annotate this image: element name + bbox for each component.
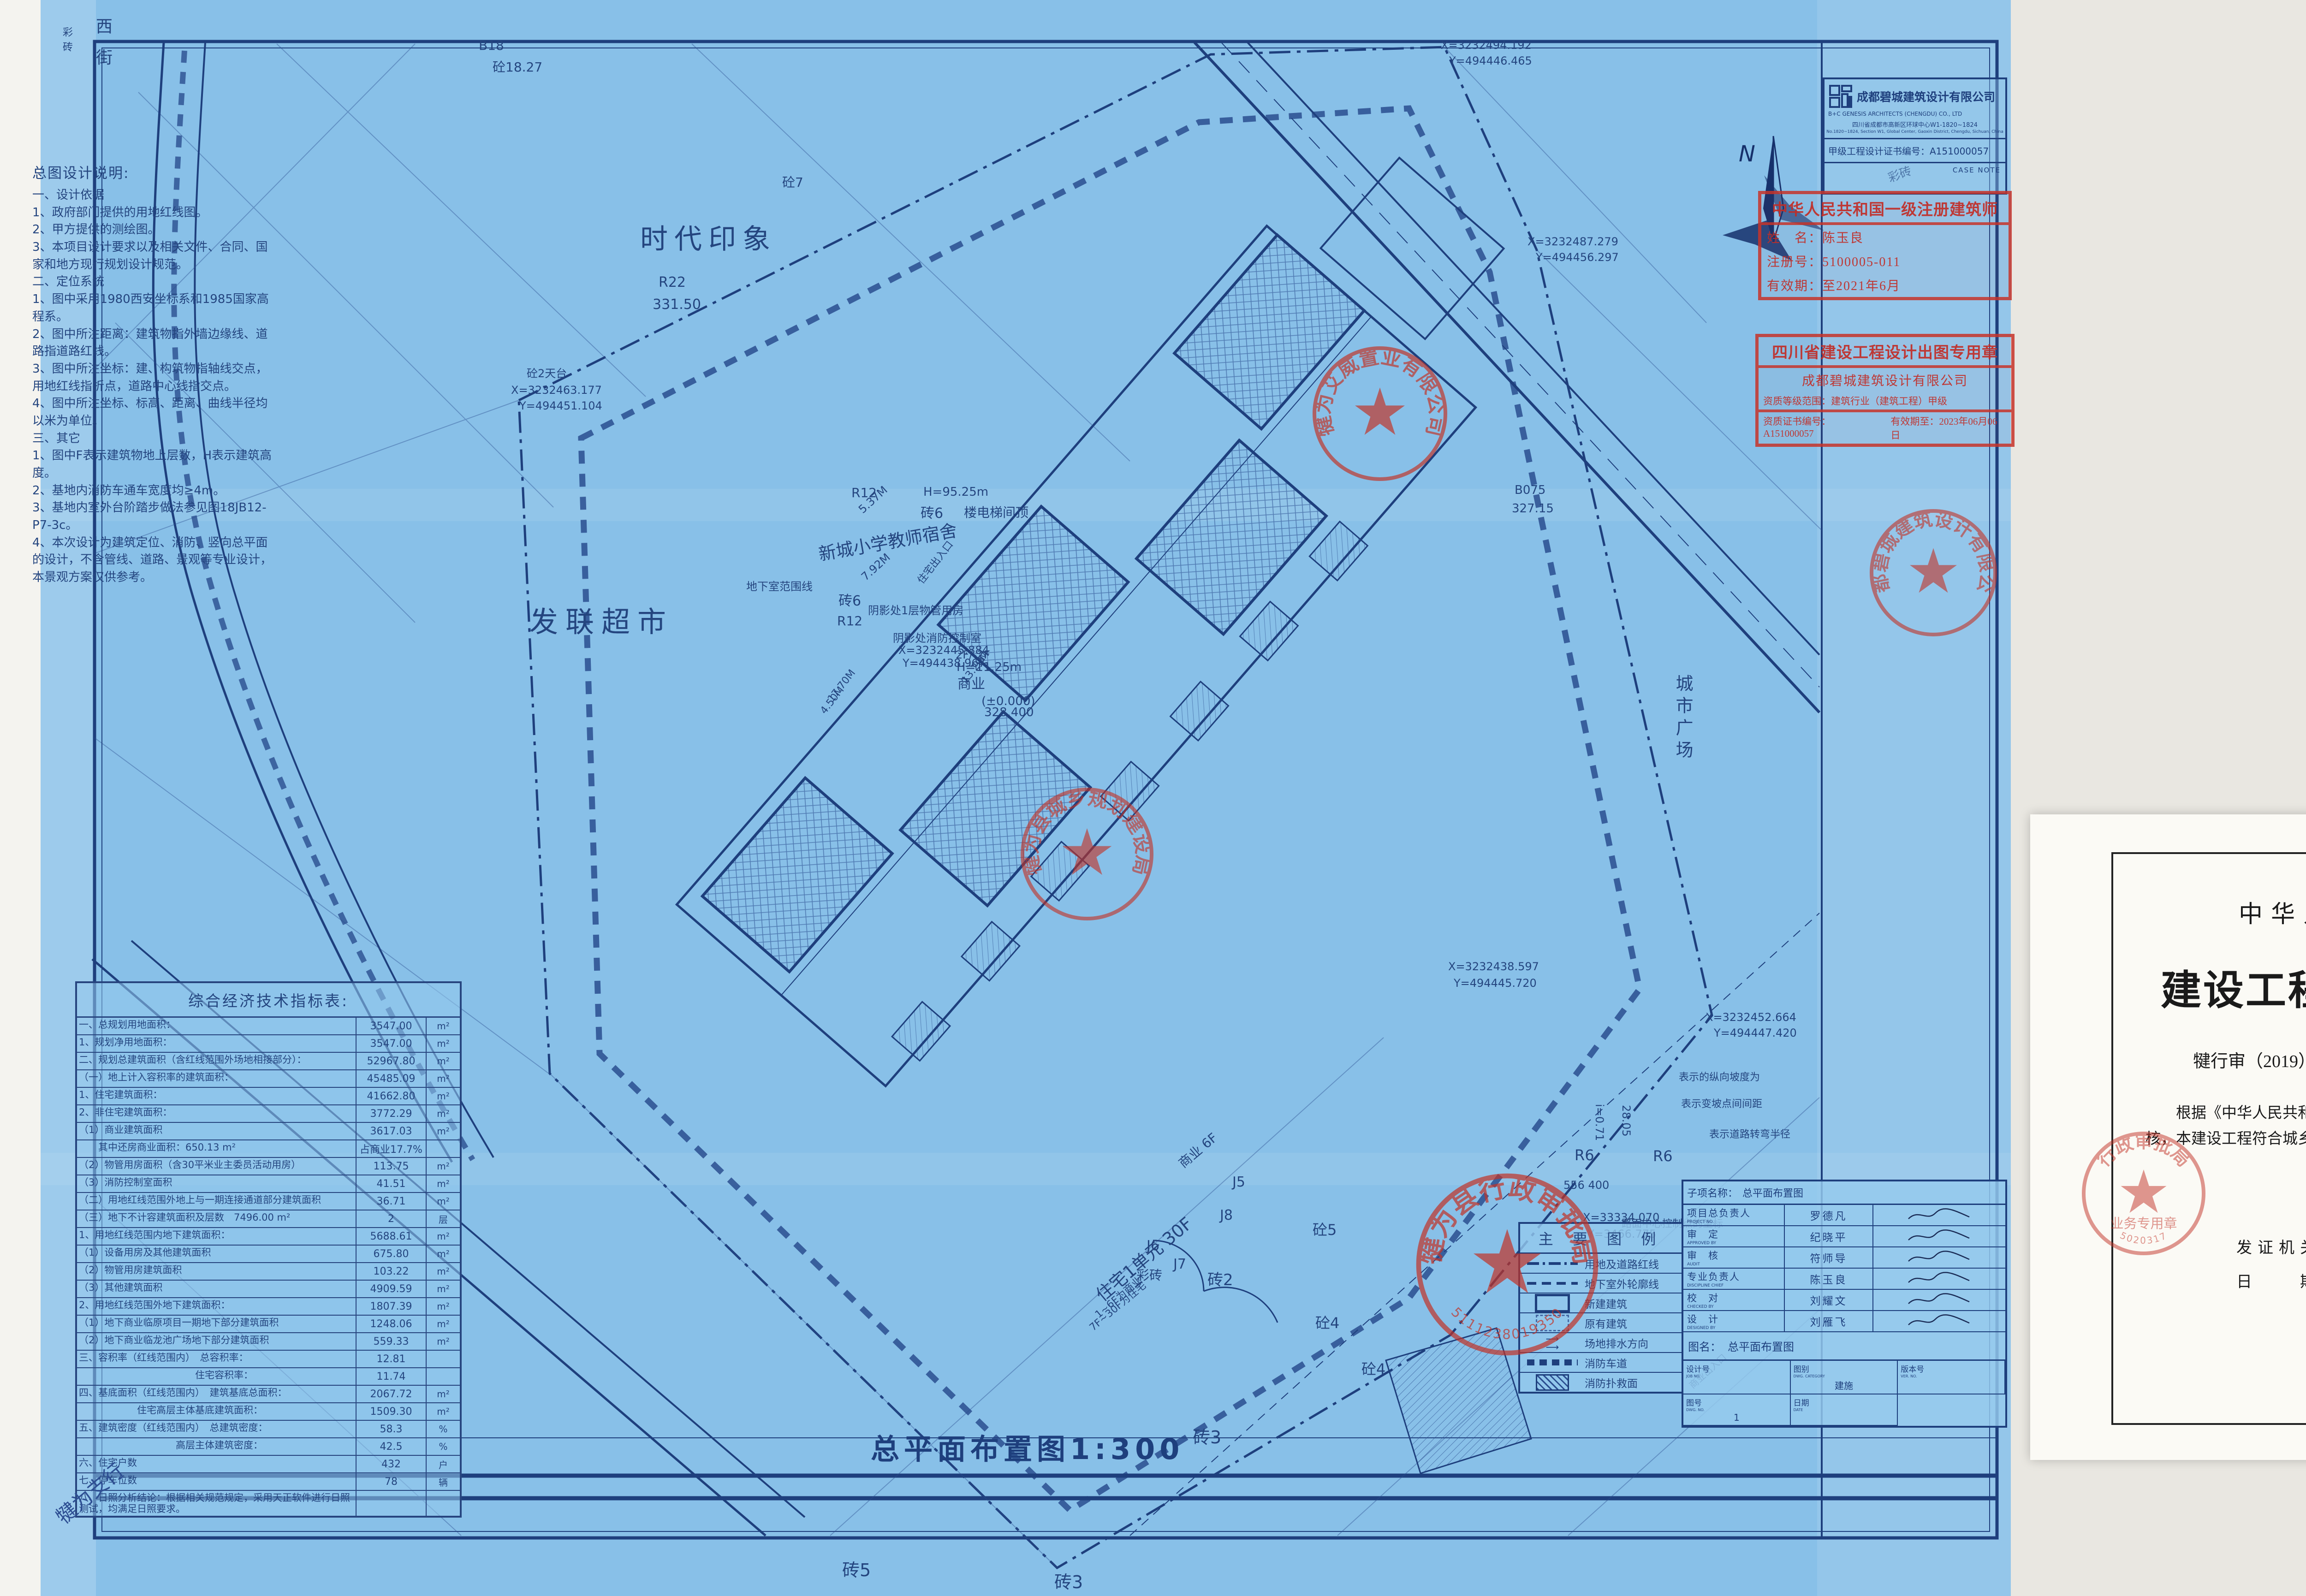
permit-body-text: 根据《中华人民共和国城乡规划法》第四十条规定，经审核，本建设工程符合城乡规划要求…	[2146, 1100, 2306, 1152]
map-label: Y=494451.104	[519, 399, 602, 412]
role-name-en: CHECKED BY	[1687, 1305, 1784, 1309]
role-name: 设 计	[1687, 1312, 1784, 1326]
signature	[1873, 1205, 2005, 1225]
econ-row-value: 41.51	[356, 1175, 426, 1192]
personnel-row: 审 核 AUDIT 符师导	[1683, 1247, 2005, 1269]
plan-title: 总平面布置图1:300	[871, 1426, 1184, 1467]
permit-date-label: 日 期	[2236, 1269, 2306, 1292]
map-label: B075	[1515, 483, 1545, 497]
map-label: 砖6	[838, 589, 861, 610]
econ-row-unit	[426, 1491, 460, 1516]
map-label: i=0.71	[1593, 1104, 1606, 1141]
personnel-row: 专业负责人 DISCIPLINE CHIEF 陈玉良	[1683, 1269, 2005, 1290]
map-label: 砖3	[1193, 1423, 1221, 1448]
map-label: R22	[659, 274, 686, 291]
econ-row-label: 其中还房商业面积：650.13 m²	[77, 1140, 356, 1157]
subitem-value: 总平面布置图	[1742, 1185, 1803, 1200]
econ-row-label: （1）设备用房及其他建筑面积	[77, 1246, 356, 1262]
map-label: 阴影处消防控制室	[893, 629, 981, 645]
econ-table-row: （2）物管用房建筑面积 103.22 m²	[77, 1263, 460, 1281]
figure-name-value: 总平面布置图	[1728, 1338, 1794, 1354]
econ-table-row: （1）设备用房及其他建筑面积 675.80 m²	[77, 1246, 460, 1263]
econ-row-value: 5688.61	[356, 1228, 426, 1245]
sichuan-stamp-valid: 有效期至：2023年06月06日	[1886, 412, 2011, 444]
econ-table-row: 八、日照分析结论：根据相关规范规定，采用天正软件进行日照测试，均满足日照要求。	[77, 1491, 460, 1516]
role-name: 审 核	[1687, 1248, 1784, 1262]
map-label: R6	[1575, 1146, 1594, 1164]
map-label: Y=494456.297	[1536, 251, 1619, 264]
econ-row-unit: m²	[426, 1386, 460, 1402]
map-label: 彩砖	[59, 27, 74, 56]
econ-row-value: 1807.39	[356, 1298, 426, 1315]
role-name: 项目总负责人	[1687, 1206, 1784, 1220]
econ-row-value: 2	[356, 1210, 426, 1227]
role-name: 专业负责人	[1687, 1270, 1784, 1283]
signature	[1873, 1290, 2005, 1310]
map-label: 砼7	[782, 172, 803, 191]
map-label: 楼电梯间顶	[964, 503, 1028, 521]
econ-row-unit: m²	[426, 1333, 460, 1350]
econ-table-row: （2）地下商业临龙池广场地下部分建筑面积 559.33 m²	[77, 1333, 460, 1351]
econ-row-label: 2、非住宅建筑面积：	[77, 1105, 356, 1122]
note-line: 三、其它	[32, 430, 272, 448]
permit-country: 中华人民共和国	[2113, 895, 2306, 929]
sichuan-stamp-title: 四川省建设工程设计出图专用章	[1759, 337, 2011, 368]
role-name: 校 对	[1687, 1291, 1784, 1305]
econ-row-value: 3547.00	[356, 1035, 426, 1052]
permit-title: 建设工程规划许可证	[2113, 958, 2306, 1016]
personnel-row: 审 定 APPROVED BY 纪晓平	[1683, 1226, 2005, 1247]
legend-symbol	[1520, 1359, 1585, 1365]
drawing-info-field: 设计号 JOB NO.	[1683, 1361, 1791, 1394]
company-address-cn: 四川省成都市高新区环球中心W1-1820~1824	[1825, 117, 2005, 130]
sichuan-stamp-scope: 资质等级范围：建筑行业（建筑工程）甲级	[1759, 392, 2011, 409]
note-line: 2、甲方提供的测绘图。	[32, 221, 272, 239]
note-line: 二、定位系统	[32, 273, 272, 291]
field-label: 图号	[1686, 1396, 1787, 1408]
map-label: 时代印象	[640, 217, 777, 257]
signature	[1873, 1226, 2005, 1246]
person-name: 符师导	[1785, 1247, 1873, 1268]
legend-row: 用地及道路红线	[1520, 1254, 1682, 1274]
econ-row-value: 41662.80	[356, 1088, 426, 1104]
note-line: 3、基地内室外台阶踏步做法参见图18JB12-P7-3c。	[32, 499, 272, 534]
econ-row-value: 2067.72	[356, 1386, 426, 1402]
map-label: J7	[1173, 1256, 1186, 1272]
notes-title: 总图设计说明:	[32, 161, 272, 182]
legend-label: 场地排水方向	[1585, 1335, 1648, 1351]
map-label: Y=494446.465	[1449, 54, 1532, 67]
signature	[1873, 1247, 2005, 1268]
econ-row-label: 1、用地红线范围内地下建筑面积：	[77, 1228, 356, 1245]
econ-table-row: 四、基底面积（红线范围内） 建筑基底总面积： 2067.72 m²	[77, 1386, 460, 1403]
map-label: R12	[837, 613, 862, 629]
note-line: 4、本次设计为建筑定位、消防、竖向总平面的设计，不含管线、道路、景观等专业设计，…	[32, 534, 272, 587]
econ-table-row: （1）地下商业临原项目一期地下部分建筑面积 1248.06 m²	[77, 1316, 460, 1333]
econ-row-unit: m²	[426, 1175, 460, 1192]
econ-table-row: 三、容积率（红线范围内） 总容积率： 12.81	[77, 1351, 460, 1368]
econ-row-label: （一）地上计入容积率的建筑面积：	[77, 1070, 356, 1087]
stamp-name-value: 陈玉良	[1822, 231, 1864, 245]
econ-row-unit: %	[426, 1421, 460, 1437]
legend-row: 原有建筑	[1520, 1313, 1682, 1333]
map-label: 331.50	[653, 297, 701, 313]
econ-row-label: 1、住宅建筑面积：	[77, 1088, 356, 1104]
stamp-reg-value: 5100005-011	[1822, 255, 1901, 269]
map-label: R6	[1653, 1147, 1673, 1165]
econ-row-value: 559.33	[356, 1333, 426, 1350]
econ-row-unit: 辆	[426, 1473, 460, 1490]
permit-issuer-label: 发证机关	[2236, 1235, 2306, 1258]
legend-title: 主 要 图 例	[1520, 1224, 1682, 1254]
econ-row-label: （3）消防控制室面积	[77, 1175, 356, 1192]
company-name-cn: 成都碧城建筑设计有限公司	[1857, 88, 1995, 105]
stamp-reg-label: 注册号：	[1767, 255, 1822, 269]
legend-label: 新建建筑	[1585, 1295, 1627, 1311]
econ-row-unit: m²	[426, 1228, 460, 1245]
econ-row-label: （2）地下商业临龙池广场地下部分建筑面积	[77, 1333, 356, 1350]
note-line: 2、基地内消防车通车宽度均≥4m。	[32, 482, 272, 500]
map-label: 阴影处1层物管用房	[868, 601, 963, 617]
econ-row-value: 78	[356, 1473, 426, 1490]
signature	[1873, 1311, 2005, 1331]
planning-permit-document: 中华人民共和国 建设工程规划许可证 犍行审（2019） 建字第 贰拾伍（25） …	[2030, 814, 2306, 1460]
econ-table-title: 综合经济技术指标表:	[77, 983, 460, 1018]
econ-table-row: 1、住宅建筑面积： 41662.80 m²	[77, 1088, 460, 1105]
econ-table-row: 六、住宅户数 432 户	[77, 1456, 460, 1473]
econ-table-row: 一、总规划用地面积： 3547.00 m²	[77, 1018, 460, 1035]
map-label: B18	[479, 38, 504, 53]
map-label: 表示道路转弯半径	[1709, 1126, 1790, 1141]
econ-row-value: 58.3	[356, 1421, 426, 1437]
role-name-en: APPROVED BY	[1687, 1241, 1784, 1246]
role-name-en: PROJECT NO.	[1687, 1220, 1784, 1224]
econ-row-unit: 户	[426, 1456, 460, 1472]
map-label: 砼2天台	[527, 364, 567, 380]
scanned-page: N 总图设计说明: 一、设计依据1、政府部门提供的用地红线图。2、甲方提供的测绘…	[0, 0, 2306, 1596]
econ-row-value: 4909.59	[356, 1281, 426, 1297]
econ-row-label: 五、建筑密度（红线范围内） 总建筑密度：	[77, 1421, 356, 1437]
company-name-en: B+C GENESIS ARCHITECTS (CHENGDU) CO., LT…	[1825, 111, 2005, 117]
econ-table-row: 其中还房商业面积：650.13 m² 占商业17.7%	[77, 1140, 460, 1158]
title-block-personnel: 子项名称： 总平面布置图 项目总负责人 PROJECT NO. 罗德凡 审 定 …	[1682, 1180, 2007, 1428]
econ-row-value: 占商业17.7%	[356, 1140, 426, 1157]
econ-row-value: 42.5	[356, 1438, 426, 1455]
econ-row-unit: m²	[426, 1158, 460, 1175]
architect-stamp: 中华人民共和国一级注册建筑师 姓 名：陈玉良 注册号：5100005-011 有…	[1758, 191, 2012, 300]
design-notes: 总图设计说明: 一、设计依据1、政府部门提供的用地红线图。2、甲方提供的测绘图。…	[32, 161, 272, 587]
map-label: 城市广场	[1670, 674, 1696, 763]
econ-row-label: 1、规划净用地面积：	[77, 1035, 356, 1052]
legend-row: 地下室外轮廓线	[1520, 1274, 1682, 1293]
signature	[1873, 1269, 2005, 1289]
econ-row-value: 36.71	[356, 1193, 426, 1210]
note-line: 1、图中F表示建筑物地上层数，H表示建筑高度。	[32, 447, 272, 482]
map-label: X=3232463.177	[511, 384, 602, 397]
sichuan-stamp-company: 成都碧城建筑设计有限公司	[1759, 368, 2011, 392]
econ-row-label: 2、用地红线范围外地下建筑面积：	[77, 1298, 356, 1315]
econ-row-label: （2）物管用房面积（含30平米业主委员活动用房）	[77, 1158, 356, 1175]
map-label: 表示的纵向坡度为	[1679, 1069, 1760, 1084]
drawing-info-field: 图号 DWG. NO. 1	[1683, 1394, 1791, 1426]
econ-row-value: 12.81	[356, 1351, 426, 1367]
role-name-en: DESIGNED BY	[1687, 1326, 1784, 1330]
note-line: 4、图中所注坐标、标高、距离、曲线半径均以米为单位。	[32, 395, 272, 430]
econ-table-row: 二、规划总建筑面积（含红线范围外场地相接部分）： 52967.80 m²	[77, 1053, 460, 1070]
note-line: 2、图中所注距离：建筑物指外墙边缘线、道路指道路红线。	[32, 326, 272, 361]
stamp-name-label: 姓 名：	[1767, 231, 1822, 245]
econ-row-label: 二、规划总建筑面积（含红线范围外场地相接部分）：	[77, 1053, 356, 1069]
econ-row-value: 432	[356, 1456, 426, 1472]
econ-row-value: 1248.06	[356, 1316, 426, 1332]
legend-symbol: ⟶⟶	[1520, 1335, 1585, 1351]
map-label: Y=494447.420	[1714, 1026, 1797, 1039]
legend-symbol	[1520, 1294, 1585, 1312]
econ-row-value: 103.22	[356, 1263, 426, 1280]
econ-row-label: （1）地下商业临原项目一期地下部分建筑面积	[77, 1316, 356, 1332]
econ-table-row: 七、停车位数 78 辆	[77, 1473, 460, 1491]
company-cert-no: 甲级工程设计证书编号：A151000057	[1825, 139, 2005, 163]
title-block-company: 成都碧城建筑设计有限公司 B+C GENESIS ARCHITECTS (CHE…	[1823, 77, 2007, 195]
econ-row-unit	[426, 1140, 460, 1157]
field-label-en: DWG. CATEGORY	[1794, 1374, 1895, 1378]
case-note-label: CASE NOTE	[1825, 163, 2005, 193]
legend-symbol	[1520, 1282, 1585, 1285]
econ-row-unit: m²	[426, 1035, 460, 1052]
econ-row-label: 住宅容积率：	[77, 1368, 356, 1385]
econ-table-row: （二）用地红线范围外地上与一期连接通道部分建筑面积 36.71 m²	[77, 1193, 460, 1210]
econ-table-row: 2、用地红线范围外地下建筑面积： 1807.39 m²	[77, 1298, 460, 1316]
note-line: 一、设计依据	[32, 187, 272, 204]
econ-row-unit: m²	[426, 1298, 460, 1315]
map-label: 砼4	[1361, 1358, 1385, 1379]
permit-border: 中华人民共和国 建设工程规划许可证 犍行审（2019） 建字第 贰拾伍（25） …	[2111, 852, 2306, 1425]
sichuan-stamp-cert: 资质证书编号：A151000057	[1759, 412, 1886, 444]
permit-serial-prefix: 犍行审（2019）	[2193, 1047, 2306, 1072]
econ-table-row: 住宅高层主体基底建筑面积： 1509.30 m²	[77, 1403, 460, 1421]
person-name: 陈玉良	[1785, 1269, 1873, 1289]
econ-table-row: （一）地上计入容积率的建筑面积： 45485.09 m²	[77, 1070, 460, 1088]
company-address-en: No.1820~1824, Section W1, Global Center,…	[1825, 130, 2005, 139]
econ-row-label: （2）物管用房建筑面积	[77, 1263, 356, 1280]
figure-name-label: 图名：	[1688, 1338, 1721, 1354]
map-label: X=3232452.664	[1706, 1011, 1796, 1024]
company-logo-icon	[1828, 84, 1853, 109]
note-line: 1、图中采用1980西安坐标系和1985国家高程系。	[32, 291, 272, 326]
econ-row-unit	[426, 1351, 460, 1367]
map-label: X=3232487.279	[1527, 235, 1618, 248]
note-line: 3、图中所注坐标：建、构筑物指轴线交点，用地红线指折点，道路中心线指交点。	[32, 361, 272, 395]
architect-stamp-title: 中华人民共和国一级注册建筑师	[1761, 194, 2009, 225]
person-name: 刘耀文	[1785, 1290, 1873, 1310]
map-label: 砼4	[1315, 1311, 1339, 1333]
note-line: 1、政府部门提供的用地红线图。	[32, 204, 272, 222]
map-label: 发联超市	[529, 599, 673, 640]
econ-row-unit: m²	[426, 1105, 460, 1122]
econ-table-row: （3）其他建筑面积 4909.59 m²	[77, 1281, 460, 1298]
map-label: H=95.25m	[923, 485, 988, 499]
map-label: 砼5	[1313, 1218, 1337, 1240]
econ-row-value: 3772.29	[356, 1105, 426, 1122]
legend-symbol	[1520, 1315, 1585, 1331]
map-label: 砖3	[1054, 1568, 1083, 1593]
econ-row-label: 一、总规划用地面积：	[77, 1018, 356, 1034]
personnel-row: 校 对 CHECKED BY 刘耀文	[1683, 1290, 2005, 1311]
econ-row-label: （二）用地红线范围外地上与一期连接通道部分建筑面积	[77, 1193, 356, 1210]
econ-table-row: （3）消防控制室面积 41.51 m²	[77, 1175, 460, 1193]
econ-row-unit: m²	[426, 1246, 460, 1262]
econ-row-unit: m²	[426, 1281, 460, 1297]
field-value: 建施	[1794, 1378, 1895, 1392]
econ-row-unit: m²	[426, 1263, 460, 1280]
legend-row: 消防扑救面	[1520, 1373, 1682, 1392]
map-label: 地下室范围线	[746, 577, 813, 593]
econ-table-row: （1）商业建筑面积 3617.03 m²	[77, 1123, 460, 1140]
econ-row-unit: %	[426, 1438, 460, 1455]
econ-row-unit: m²	[426, 1018, 460, 1034]
econ-row-unit: m²	[426, 1088, 460, 1104]
econ-row-label: 三、容积率（红线范围内） 总容积率：	[77, 1351, 356, 1367]
person-name: 纪晓平	[1785, 1226, 1873, 1246]
map-label: X=3232494.192	[1441, 39, 1532, 52]
econ-row-unit: m²	[426, 1070, 460, 1087]
legend-symbol	[1520, 1262, 1585, 1265]
econ-row-unit: m²	[426, 1053, 460, 1069]
field-label: 设计号	[1686, 1363, 1787, 1374]
role-name: 审 定	[1687, 1227, 1784, 1241]
note-line: 3、本项目设计要求以及相关文件、合同、国家和地方现行规划设计规范。	[32, 239, 272, 273]
personnel-row: 项目总负责人 PROJECT NO. 罗德凡	[1683, 1205, 2005, 1226]
legend-row: 新建建筑	[1520, 1293, 1682, 1313]
econ-table-row: 2、非住宅建筑面积： 3772.29 m²	[77, 1105, 460, 1123]
person-name: 罗德凡	[1785, 1205, 1873, 1225]
econ-row-value: 11.74	[356, 1368, 426, 1385]
econ-table-row: 住宅容积率： 11.74	[77, 1368, 460, 1386]
legend-label: 消防扑救面	[1585, 1375, 1638, 1390]
map-label: 砖2	[1207, 1267, 1233, 1290]
field-label: 日期	[1794, 1396, 1895, 1408]
role-name-en: DISCIPLINE CHIEF	[1687, 1283, 1784, 1288]
map-label: J5	[1232, 1174, 1245, 1190]
econ-row-value: 1509.30	[356, 1403, 426, 1420]
stamp-valid-label: 有效期：	[1767, 279, 1822, 293]
econ-row-label: （三）地下不计容建筑面积及层数 7496.00 m²	[77, 1210, 356, 1227]
subitem-label: 子项名称：	[1687, 1185, 1738, 1200]
legend-label: 原有建筑	[1585, 1315, 1627, 1331]
field-value: 1	[1686, 1412, 1787, 1423]
person-name: 刘雁飞	[1785, 1311, 1873, 1331]
econ-row-label: 高层主体建筑密度：	[77, 1438, 356, 1455]
econ-row-value: 675.80	[356, 1246, 426, 1262]
field-label-en: DATE	[1794, 1408, 1895, 1412]
econ-row-label: 八、日照分析结论：根据相关规范规定，采用天正软件进行日照测试，均满足日照要求。	[77, 1491, 356, 1516]
field-label-en: JOB NO.	[1686, 1374, 1787, 1378]
map-label: 砼18.27	[493, 57, 542, 76]
map-label: 砖5	[842, 1556, 871, 1581]
econ-row-label: 住宅高层主体基底建筑面积：	[77, 1403, 356, 1420]
economic-indicator-table: 综合经济技术指标表: 一、总规划用地面积： 3547.00 m² 1、规划净用地…	[75, 981, 462, 1518]
econ-row-unit: m²	[426, 1193, 460, 1210]
map-label: 西 街	[90, 18, 114, 70]
econ-table-row: 高层主体建筑密度： 42.5 %	[77, 1438, 460, 1456]
drawing-info-field: 日期 DATE	[1791, 1394, 1898, 1426]
field-label-en: DWG. NO.	[1686, 1408, 1787, 1412]
stamp-valid-value: 至2021年6月	[1822, 279, 1901, 293]
map-label: 砖6	[921, 502, 943, 522]
econ-row-value: 3617.03	[356, 1123, 426, 1139]
econ-row-label: 四、基底面积（红线范围内） 建筑基底总面积：	[77, 1386, 356, 1402]
econ-row-value: 45485.09	[356, 1070, 426, 1087]
drawing-info-field: 版本号 VER. NO.	[1898, 1361, 2005, 1394]
field-label: 版本号	[1901, 1363, 2002, 1374]
map-label: X=3232438.597	[1448, 960, 1539, 973]
legend-label: 消防车道	[1585, 1355, 1627, 1371]
role-name-en: AUDIT	[1687, 1262, 1784, 1267]
legend-box: 主 要 图 例 用地及道路红线 地下室外轮廓线 新建建筑 原有建筑 ⟶⟶ 场地排…	[1518, 1222, 1683, 1394]
legend-label: 用地及道路红线	[1585, 1256, 1659, 1271]
map-label: 556 400	[1563, 1179, 1609, 1192]
econ-table-row: （2）物管用房面积（含30平米业主委员活动用房） 113.75 m²	[77, 1158, 460, 1175]
econ-row-label: （1）商业建筑面积	[77, 1123, 356, 1139]
econ-row-value: 113.75	[356, 1158, 426, 1175]
drawing-info-field: 图别 DWG. CATEGORY 建施	[1791, 1361, 1898, 1394]
econ-row-value: 52967.80	[356, 1053, 426, 1069]
econ-row-unit: m²	[426, 1316, 460, 1332]
field-label: 图别	[1794, 1363, 1895, 1374]
econ-row-value	[356, 1491, 426, 1516]
econ-table-row: 五、建筑密度（红线范围内） 总建筑密度： 58.3 %	[77, 1421, 460, 1438]
econ-row-unit: m²	[426, 1403, 460, 1420]
legend-symbol	[1520, 1374, 1585, 1391]
econ-table-row: 1、用地红线范围内地下建筑面积： 5688.61 m²	[77, 1228, 460, 1246]
legend-label: 地下室外轮廓线	[1585, 1276, 1659, 1291]
econ-table-row: （三）地下不计容建筑面积及层数 7496.00 m² 2 层	[77, 1210, 460, 1228]
econ-row-unit	[426, 1368, 460, 1385]
map-label: 327.15	[1512, 502, 1554, 516]
sichuan-drawing-stamp: 四川省建设工程设计出图专用章 成都碧城建筑设计有限公司 资质等级范围：建筑行业（…	[1755, 334, 2015, 447]
map-label: 表示变坡点间间距	[1681, 1096, 1762, 1110]
field-label-en: VER. NO.	[1901, 1374, 2002, 1378]
legend-row: 消防车道	[1520, 1353, 1682, 1373]
personnel-row: 设 计 DESIGNED BY 刘雁飞	[1683, 1311, 2005, 1332]
map-label: Y=494445.720	[1454, 977, 1537, 990]
econ-table-row: 1、规划净用地面积： 3547.00 m²	[77, 1035, 460, 1053]
econ-row-unit: 层	[426, 1210, 460, 1227]
econ-row-label: （3）其他建筑面积	[77, 1281, 356, 1297]
map-label: J8	[1220, 1207, 1233, 1223]
legend-row: ⟶⟶ 场地排水方向	[1520, 1333, 1682, 1353]
map-label: 328.400	[984, 706, 1034, 719]
map-label: 28.05	[1620, 1105, 1633, 1137]
econ-row-unit: m²	[426, 1123, 460, 1139]
econ-row-value: 3547.00	[356, 1018, 426, 1034]
